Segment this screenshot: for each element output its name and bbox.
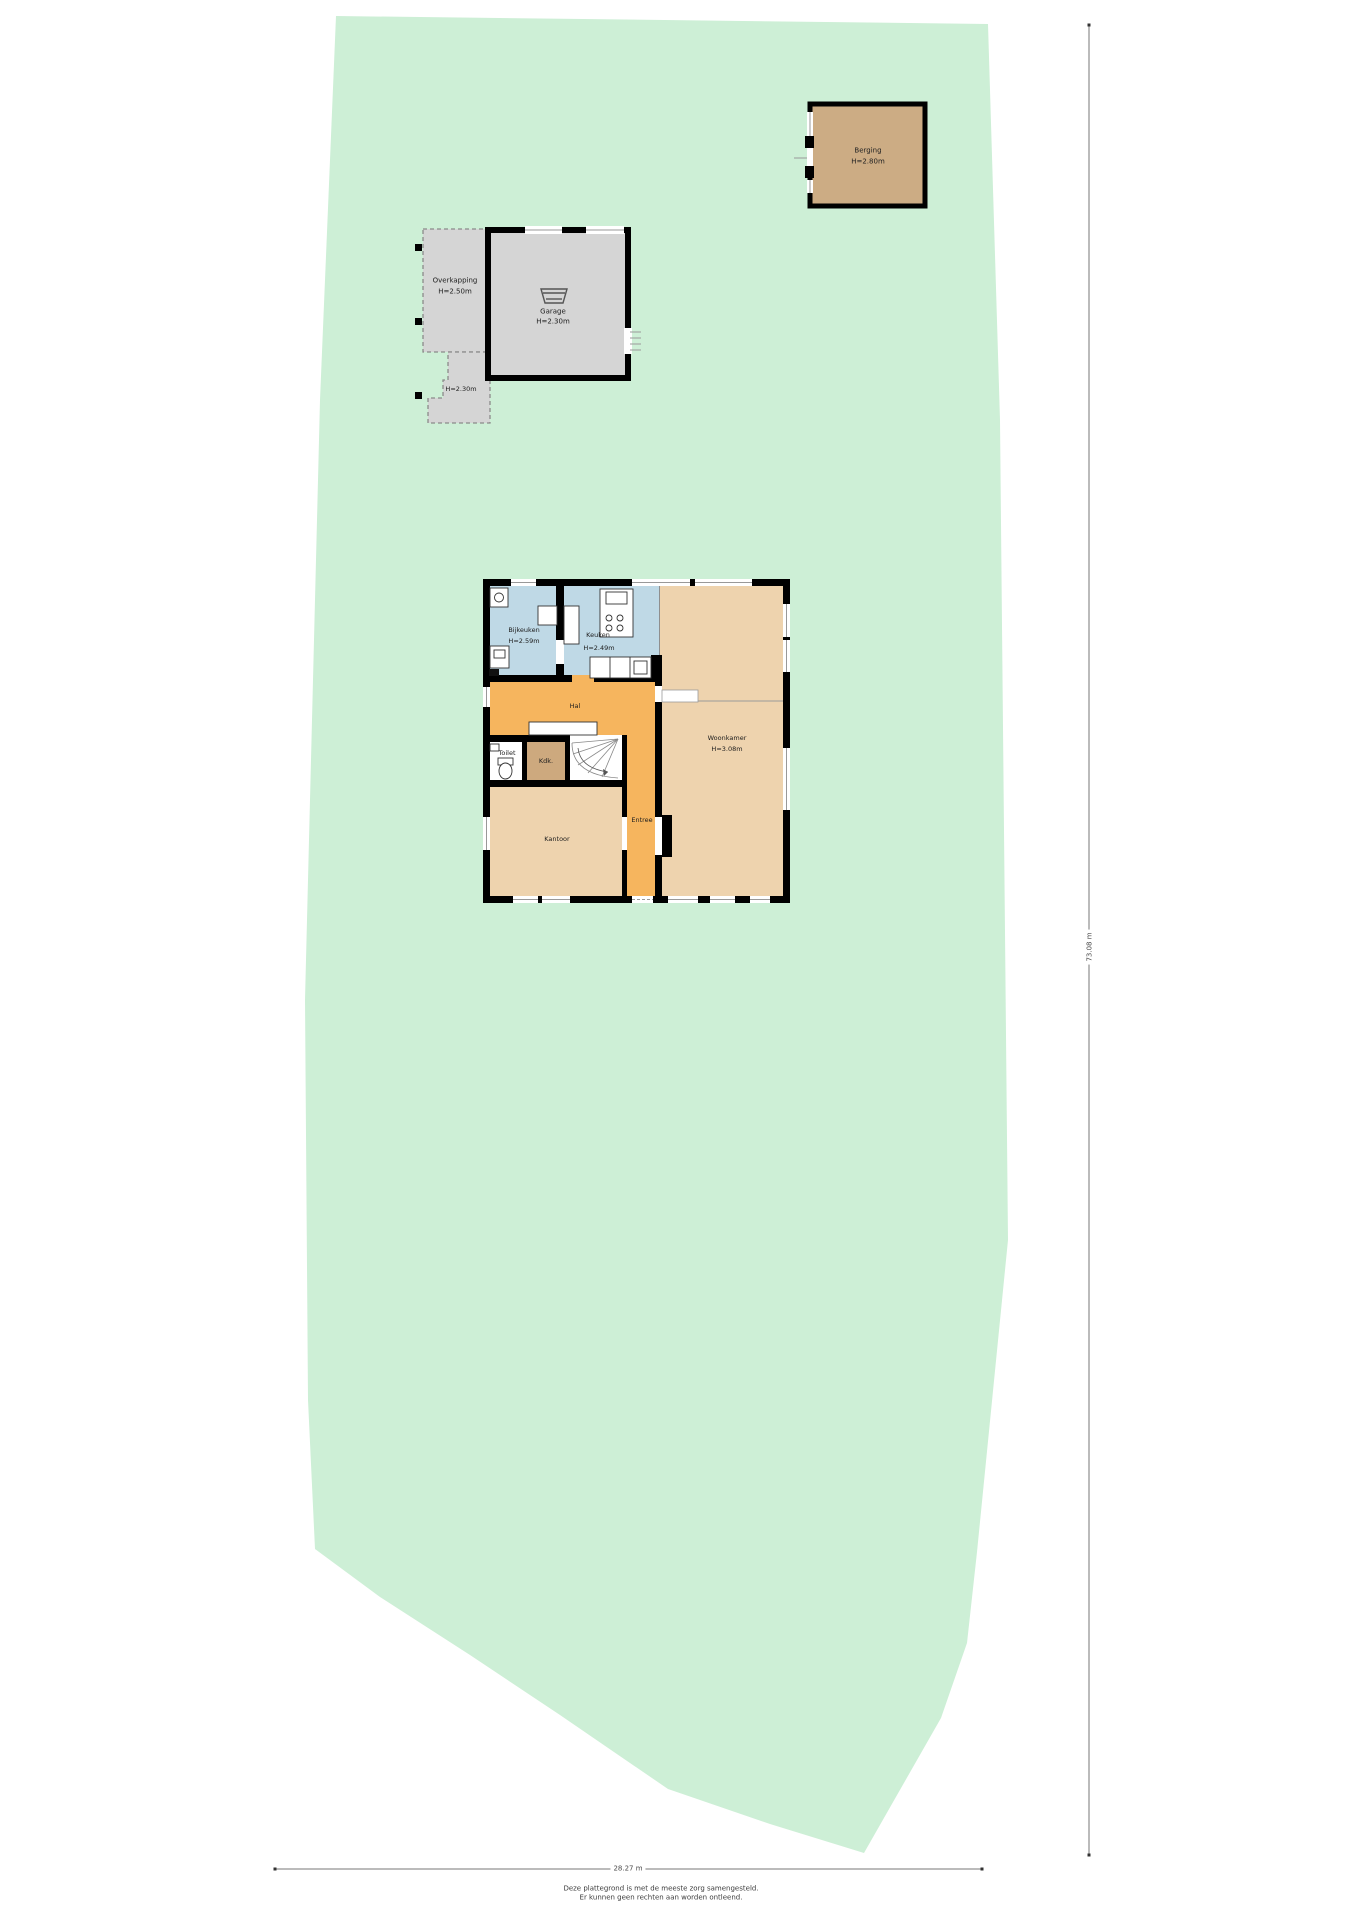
bijkeuken-height-label: H=2.59m [508,638,539,645]
hal-label: Hal [570,703,581,710]
woonkamer-height-label: H=3.08m [711,746,742,753]
kast-label: Kdk. [539,758,553,765]
post-icon [415,318,422,325]
plot-width-dimension: 28.27 m [610,1866,645,1873]
woonkamer-label: Woonkamer [708,735,747,742]
berging-building [794,104,925,206]
cabinet-icon [538,606,557,625]
site-plan-page: Berging H=2.80m Overkapping H=2.50m Gara… [0,0,1358,1920]
entree-label: Entree [631,817,652,824]
sideboard-icon [529,722,597,735]
keuken-label: Keuken [586,632,610,639]
post-icon [415,392,422,399]
meterkast-icon [489,669,499,676]
toilet-label: Toilet [498,750,515,757]
appliance-icon [490,646,509,668]
berging-door [807,148,813,166]
garage-label: Garage [540,309,566,316]
overkapping-klein-height-label: H=2.30m [445,386,476,393]
berging-height-label: H=2.80m [851,159,885,166]
plot-polygon [305,16,1008,1853]
kantoor-label: Kantoor [544,836,569,843]
berging-label: Berging [854,148,881,155]
site-plan-drawing [0,0,1358,1920]
disclaimer-line-1: Deze plattegrond is met de meeste zorg s… [563,1886,758,1893]
disclaimer-line-2: Er kunnen geen rechten aan worden ontlee… [580,1895,743,1902]
fridge-icon [564,606,579,644]
overkapping-height-label: H=2.50m [438,289,472,296]
plot-height-dimension: 73.08 m [1087,929,1094,964]
garage-height-label: H=2.30m [536,319,570,326]
keuken-height-label: H=2.49m [583,645,614,652]
front-door-icon [662,815,672,857]
garage-building [488,226,641,378]
post-icon [415,244,422,251]
washer-icon [490,588,508,607]
bijkeuken-label: Bijkeuken [508,627,539,634]
counter-icon [590,657,651,678]
overkapping-label: Overkapping [433,278,478,285]
